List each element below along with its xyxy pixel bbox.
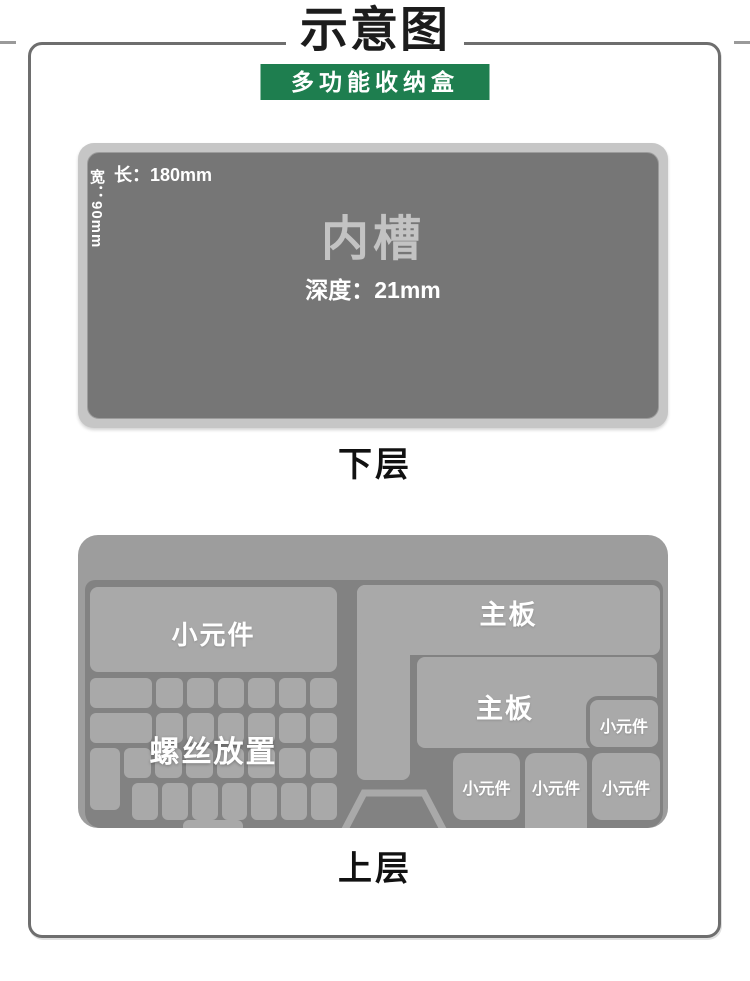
screw-cell [248,678,275,708]
lower-layer-caption: 下层 [0,437,750,486]
screw-cell-wide [90,678,152,708]
small-parts-right-label: 小元件 [586,713,662,737]
mainboard-middle-label: 主板 [417,687,593,726]
screw-cell [187,678,214,708]
small-parts-large-label: 小元件 [90,615,337,652]
lower-layer-box: 长：180mm 宽：90mm 内槽 深度：21mm [78,143,668,428]
length-dimension-label: 长：180mm [114,161,212,187]
edge-guide-line-left [0,41,16,44]
screw-cell [156,678,183,708]
screw-cell [192,783,218,820]
screw-cell [222,783,248,820]
subtitle-banner: 多功能收纳盒 [261,64,490,100]
page-title: 示意图 [286,0,464,64]
schematic-page: 示意图 多功能收纳盒 长：180mm 宽：90mm 内槽 深度：21mm 下层 … [0,0,750,981]
screw-cell [162,783,188,820]
screws-area-label: 螺丝放置 [90,727,337,771]
edge-guide-line-right [734,41,750,44]
depth-dimension-label: 深度：21mm [88,271,658,305]
screw-cell [218,678,245,708]
upper-layer-tray: 小元件 螺丝放置 主板 主板 小元件 小元件 小元件 小元件 [78,535,668,828]
screw-cell [310,678,337,708]
screw-cell [311,783,337,820]
inner-slot-area: 长：180mm 宽：90mm 内槽 深度：21mm [87,152,659,419]
screw-cell [251,783,277,820]
thumb-notch [336,787,454,828]
small-parts-bottom-label-2: 小元件 [525,775,587,799]
upper-layer-caption: 上层 [0,841,750,890]
mainboard-top-label: 主板 [357,593,660,632]
screw-grid-row [90,678,337,708]
bottom-rim-tab [183,820,243,828]
inner-slot-title: 内槽 [88,199,658,269]
screw-cell [279,678,306,708]
screw-cell [132,783,158,820]
screw-grid-row [90,783,337,820]
screw-cell [281,783,307,820]
small-parts-bottom-label-1: 小元件 [453,775,520,799]
small-parts-bottom-label-3: 小元件 [592,775,660,799]
